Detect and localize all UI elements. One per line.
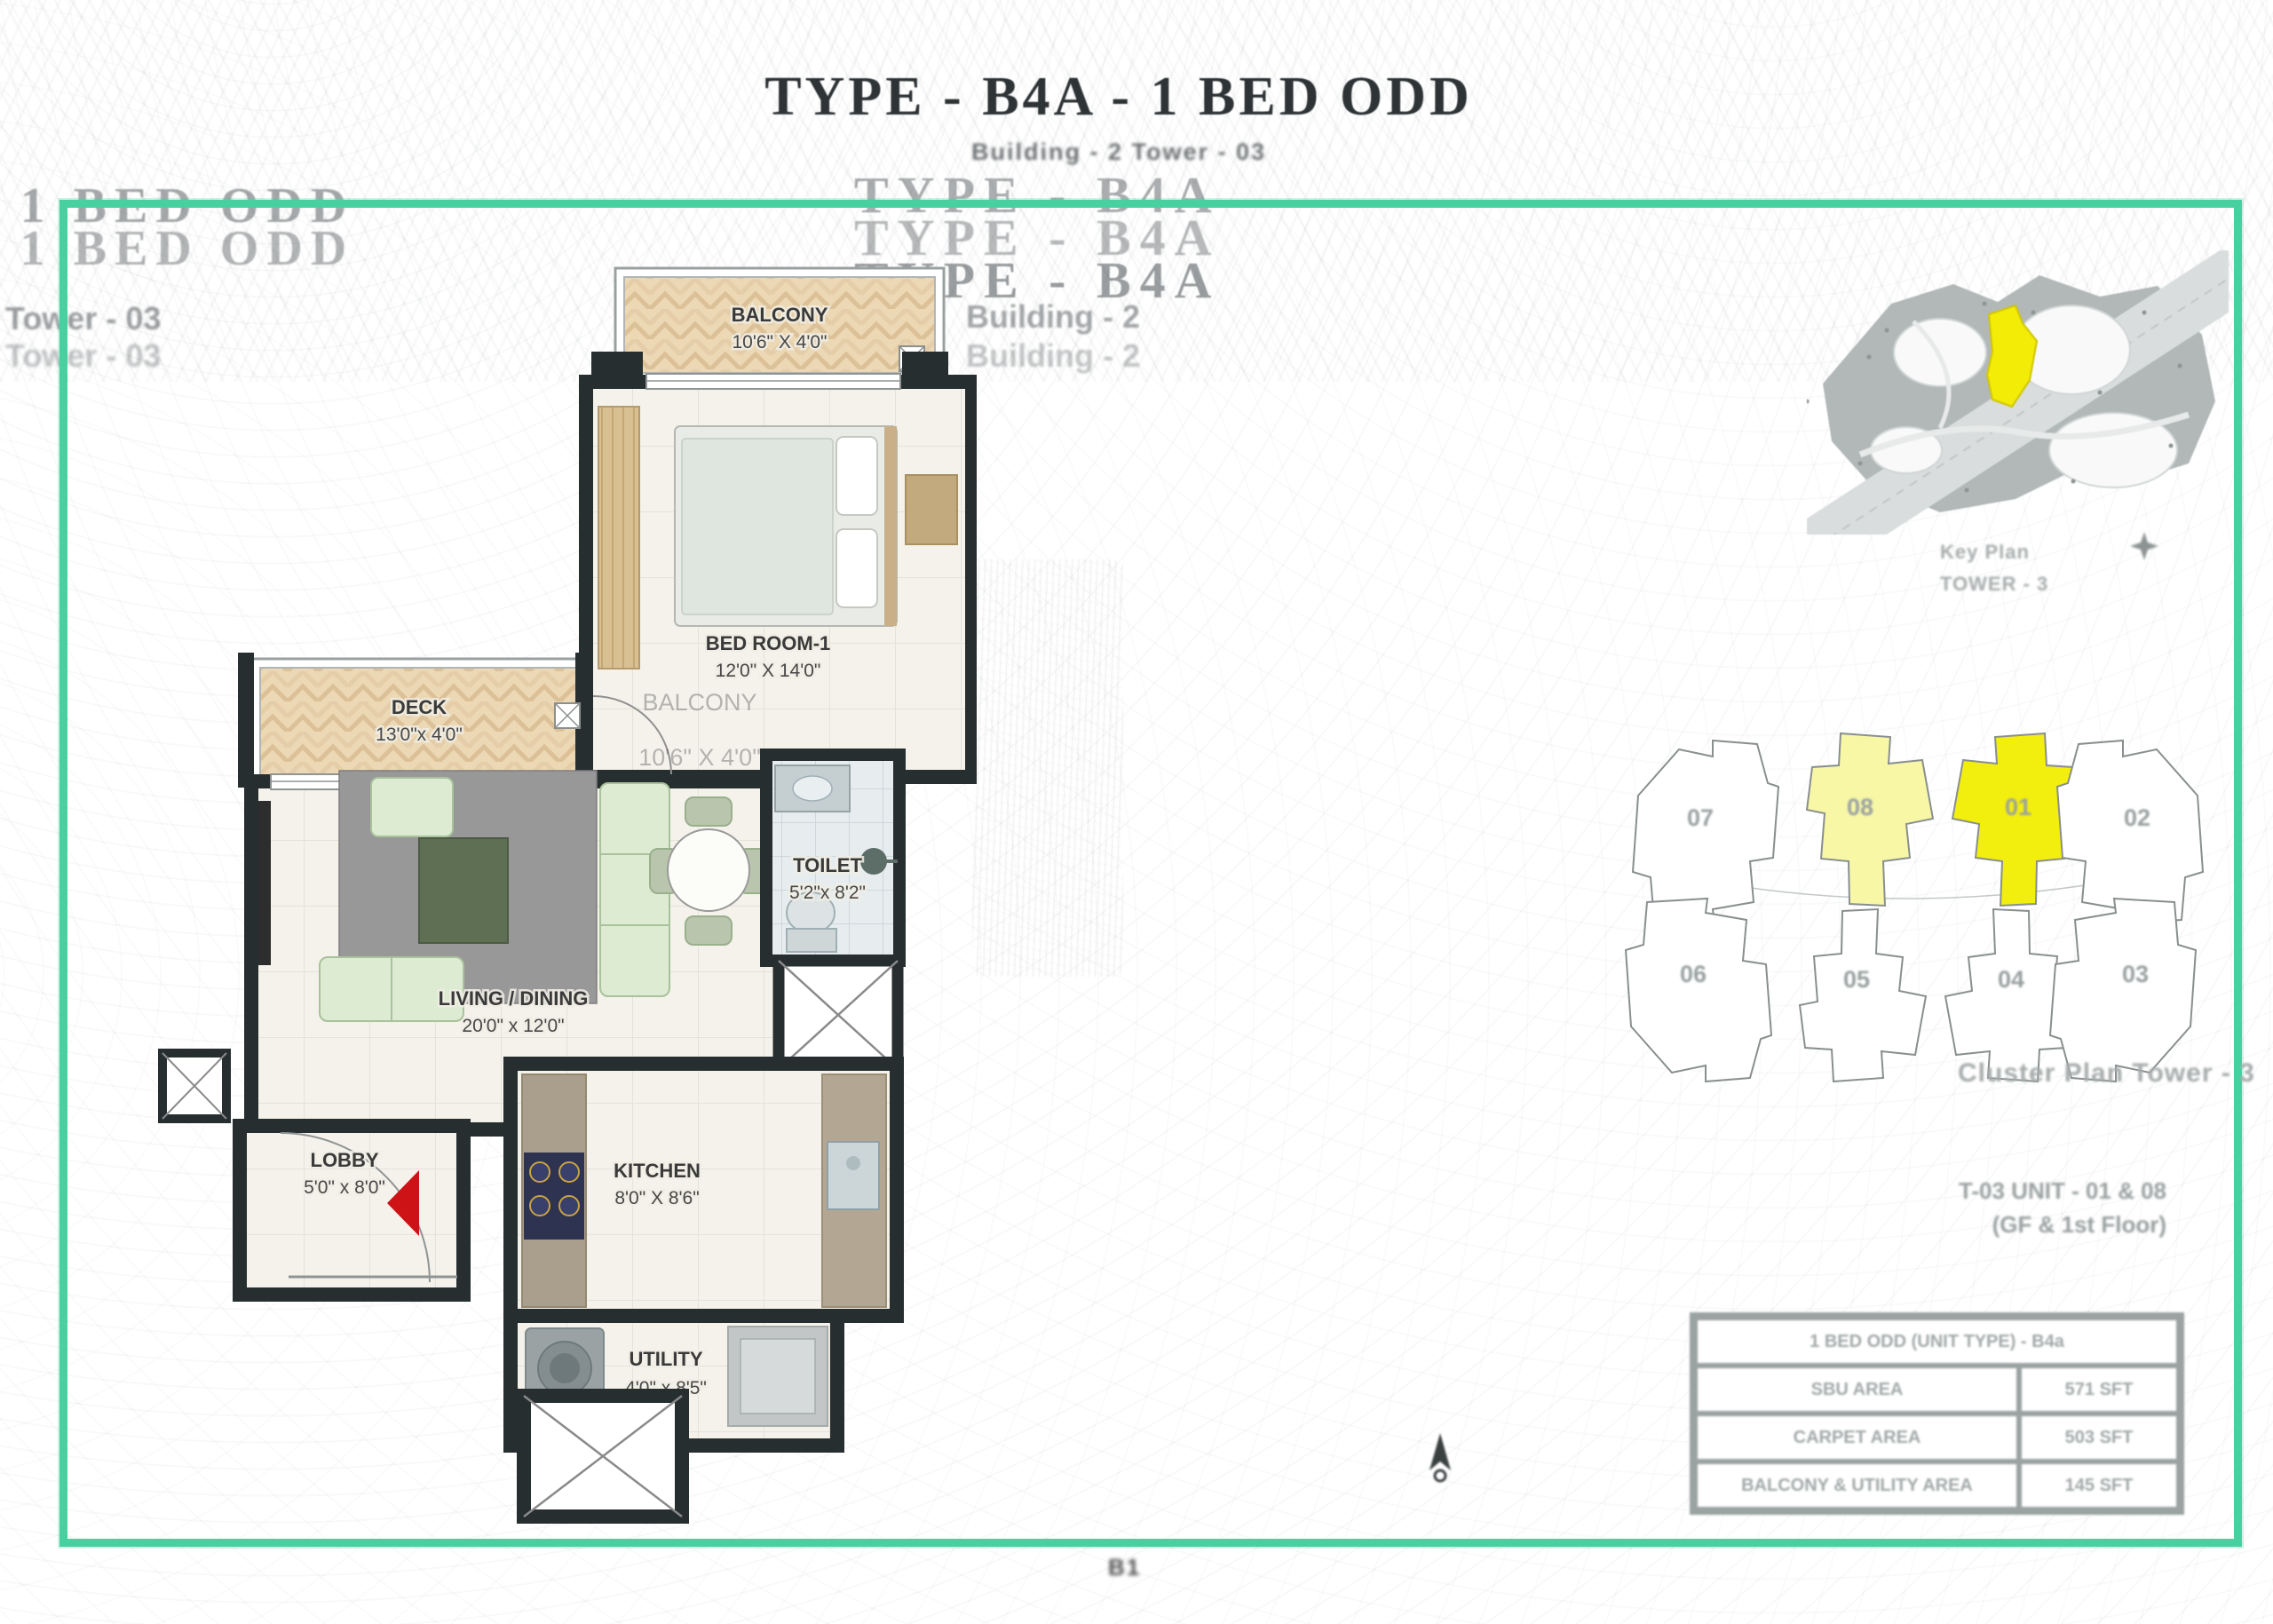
room-dims: 10'6" X 4'0"	[733, 332, 828, 353]
room-label: LIVING / DINING	[439, 987, 589, 1010]
area-table-header: 1 BED ODD (UNIT TYPE) - B4a	[1695, 1318, 2179, 1366]
page-title: TYPE - B4A - 1 BED ODD	[737, 66, 1501, 129]
tv-unit	[258, 801, 271, 965]
room-dims: 5'0" x 8'0"	[304, 1177, 385, 1198]
area-table-value: 145 SFT	[2019, 1462, 2179, 1509]
cluster-plan: 07 08 01 02 06 05 04 03	[1594, 694, 2215, 1089]
room-label: UTILITY	[629, 1348, 702, 1370]
floor-plan: BALCONY 10'6" X 4'0" BED ROOM-1 12'0" X …	[107, 249, 977, 1527]
key-plan-caption-line2: TOWER - 3	[1940, 568, 2135, 600]
room-dims: 13'0"x 4'0"	[376, 725, 463, 745]
page-subtitle: Building - 2 Tower - 03	[737, 139, 1501, 166]
area-table-label: SBU AREA	[1695, 1366, 2019, 1414]
bedside-table	[906, 475, 957, 544]
armchair	[371, 778, 453, 836]
room-label: BALCONY	[732, 304, 828, 326]
room-lobby: LOBBY 5'0" x 8'0"	[240, 1126, 463, 1295]
unit-number: 04	[1998, 966, 2024, 993]
shaft-small	[162, 1053, 226, 1119]
area-table-value: 571 SFT	[2019, 1366, 2179, 1414]
room-dims: 5'2"x 8'2"	[789, 883, 866, 903]
area-table-label: CARPET AREA	[1695, 1414, 2019, 1462]
bed	[675, 426, 897, 626]
stove	[524, 1153, 584, 1240]
cluster-unit-03	[2050, 899, 2196, 1081]
room-dims: 12'0" X 14'0"	[716, 661, 821, 681]
room-label: TOILET	[793, 854, 862, 876]
room-label: LOBBY	[311, 1149, 379, 1171]
unit-number: 05	[1843, 966, 1870, 993]
unit-number: 03	[2122, 961, 2149, 987]
unit-number: 08	[1847, 794, 1873, 820]
cluster-unit-06	[1626, 899, 1771, 1081]
key-plan-caption: Key Plan TOWER - 3	[1940, 536, 2135, 600]
key-plan	[1807, 250, 2229, 535]
area-table-value: 503 SFT	[2019, 1414, 2179, 1462]
unit-number: 07	[1687, 804, 1714, 831]
sink	[828, 1142, 879, 1209]
cluster-unit-05	[1800, 909, 1926, 1081]
room-deck: DECK 13'0"x 4'0"	[238, 653, 591, 788]
coffee-table	[419, 838, 508, 943]
unit-number: 06	[1680, 961, 1707, 987]
key-plan-caption-line1: Key Plan	[1940, 536, 2135, 568]
page-marker: B1	[1108, 1554, 1141, 1581]
unit-info-line2: (GF & 1st Floor)	[1865, 1208, 2166, 1241]
cluster-unit-02	[2057, 741, 2203, 923]
shaft	[779, 961, 898, 1069]
wardrobe	[598, 407, 639, 669]
area-table: 1 BED ODD (UNIT TYPE) - B4a SBU AREA 571…	[1690, 1312, 2184, 1515]
cluster-plan-caption: Cluster Plan Tower - 3	[1958, 1058, 2224, 1089]
room-label: BED ROOM-1	[706, 632, 831, 654]
room-label: DECK	[392, 696, 447, 718]
room-toilet: TOILET 5'2"x 8'2"	[766, 755, 899, 961]
unit-info-line1: T-03 UNIT - 01 & 08	[1865, 1174, 2166, 1208]
room-dims: 8'0" X 8'6"	[614, 1188, 699, 1208]
ghost-room-label: BALCONY	[642, 689, 756, 716]
brochure-page: TYPE - B4A TYPE - B4A TYPE - B4A Buildin…	[0, 0, 2273, 1624]
room-dims: 20'0" x 12'0"	[462, 1016, 564, 1036]
room-kitchen: KITCHEN 8'0" X 8'6"	[511, 1064, 897, 1316]
unit-number: 02	[2124, 804, 2150, 831]
room-label: KITCHEN	[614, 1160, 701, 1182]
area-table-label: BALCONY & UTILITY AREA	[1695, 1462, 2019, 1509]
print-artifact	[972, 559, 1123, 977]
north-arrow-icon	[1421, 1431, 1460, 1485]
room-bedroom: BED ROOM-1 12'0" X 14'0" BALCONY 10'6" X…	[586, 374, 972, 777]
cluster-unit-07	[1633, 741, 1778, 923]
ghost-room-dims: 10'6" X 4'0"	[638, 744, 761, 771]
unit-info: T-03 UNIT - 01 & 08 (GF & 1st Floor)	[1865, 1174, 2166, 1241]
compass-icon	[2129, 531, 2159, 561]
shaft-bottom	[524, 1396, 682, 1517]
unit-number: 01	[2005, 794, 2031, 820]
